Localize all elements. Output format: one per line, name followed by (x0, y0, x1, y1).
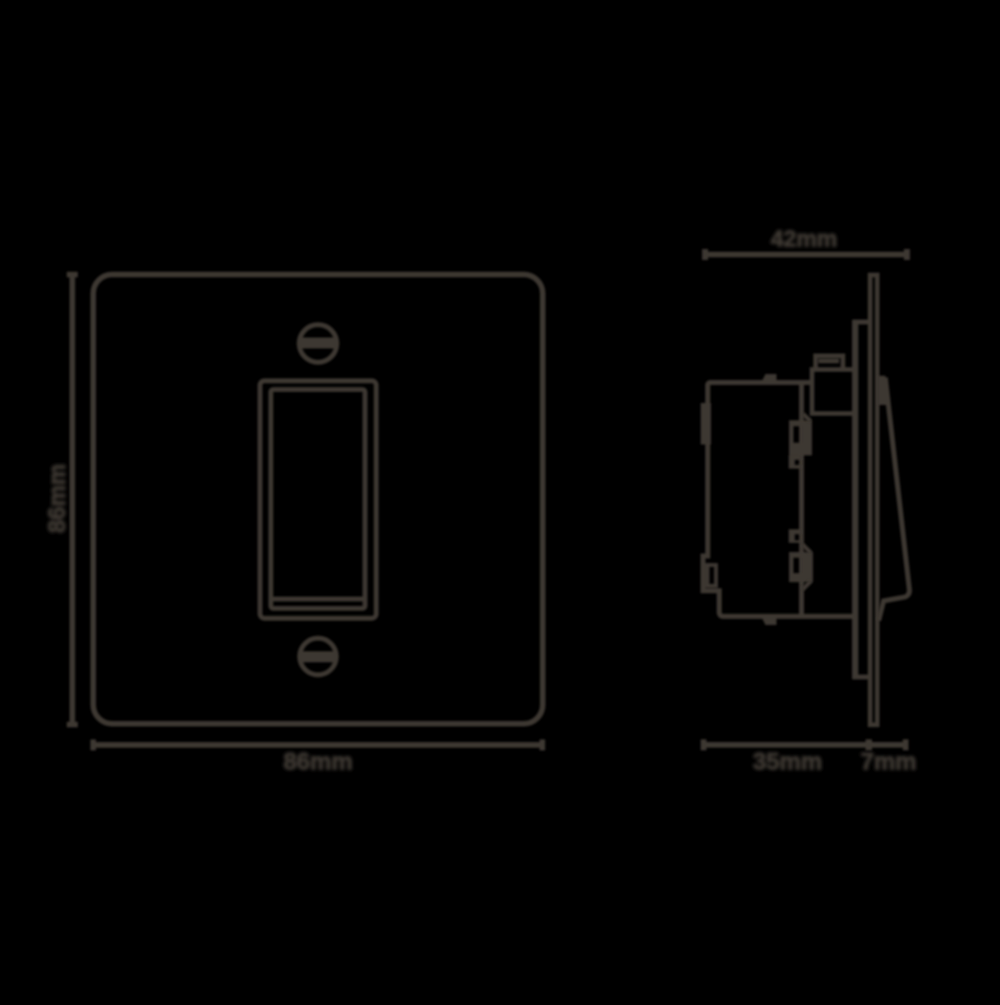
svg-text:35mm: 35mm (753, 749, 822, 776)
svg-text:86mm: 86mm (283, 749, 352, 776)
svg-text:86mm: 86mm (44, 464, 71, 533)
svg-text:7mm: 7mm (860, 749, 916, 776)
svg-text:42mm: 42mm (771, 226, 837, 252)
